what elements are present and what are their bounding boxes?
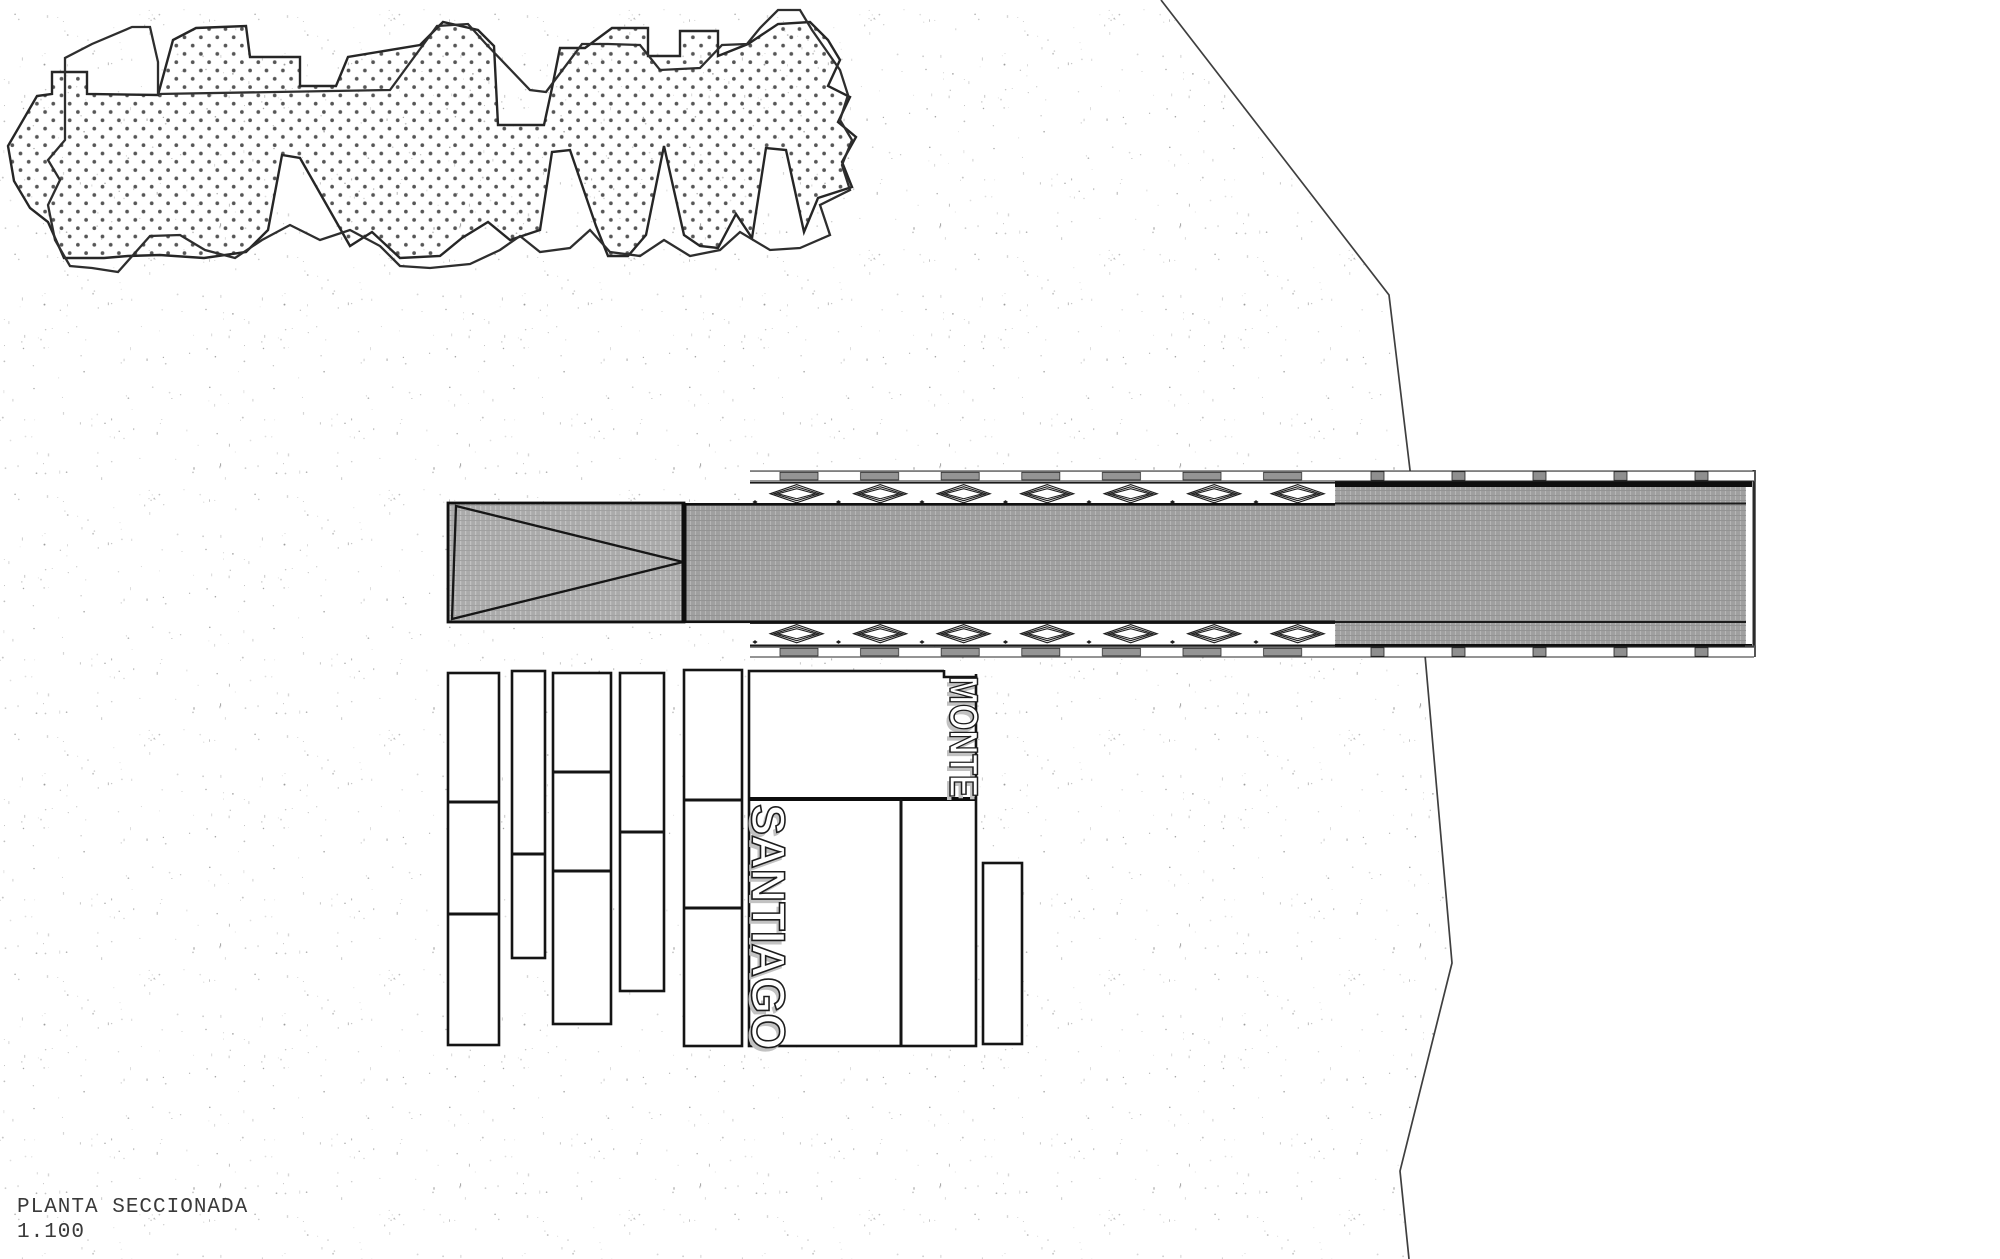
- svg-text:MONTE: MONTE: [941, 676, 985, 797]
- svg-text:PLANTA SECCIONADA: PLANTA SECCIONADA: [17, 1196, 248, 1219]
- svg-text:1.100: 1.100: [17, 1221, 85, 1244]
- svg-text:SANTIAGO: SANTIAGO: [742, 804, 794, 1050]
